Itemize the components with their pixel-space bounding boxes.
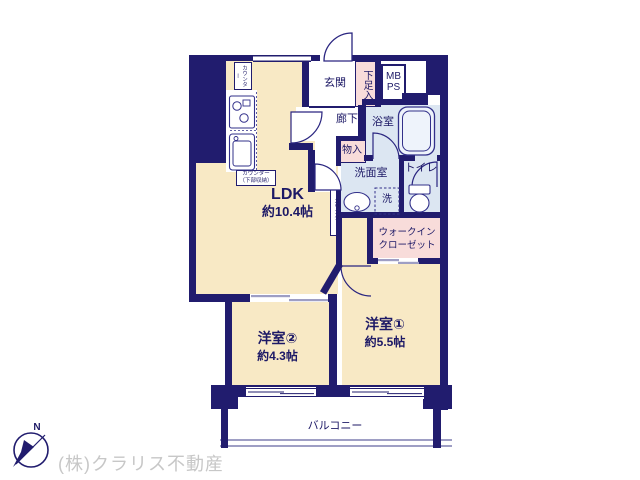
wall xyxy=(221,409,228,448)
balcony-label: バルコニー xyxy=(300,420,370,433)
meter-box-label: MB PS xyxy=(381,71,406,93)
wall xyxy=(189,55,253,61)
balcony-fence-line xyxy=(220,445,452,447)
wall xyxy=(367,258,378,264)
room-bedroom2-size: 約4.3帖 xyxy=(230,349,325,363)
room-bedroom1-label: 洋室① xyxy=(335,316,435,333)
compass-icon xyxy=(13,433,48,467)
wall xyxy=(336,212,448,218)
room-bedroom1-size: 約5.5帖 xyxy=(335,335,435,349)
balcony-fence-line xyxy=(220,439,452,441)
wall xyxy=(367,212,373,264)
wall xyxy=(440,55,448,410)
washer-label: 洗 xyxy=(377,194,397,206)
watermark-text: (株)クラリス不動産 xyxy=(58,450,224,476)
room-wic-label: ウォークイン クローゼット xyxy=(374,227,440,253)
wall xyxy=(418,258,448,264)
room-washroom-label: 洗面室 xyxy=(343,167,399,180)
wall xyxy=(437,155,440,161)
room-entrance-label: 玄関 xyxy=(315,77,355,90)
compass-north-label: N xyxy=(30,422,44,434)
room-ldk-size: 約10.4帖 xyxy=(240,204,335,219)
room-ldk-label: LDK xyxy=(245,186,330,205)
vestibule-floor xyxy=(315,141,336,192)
wall xyxy=(302,61,309,107)
kitchen-strip-floor xyxy=(226,90,257,172)
room-nook-floor xyxy=(342,218,367,262)
wall xyxy=(225,294,250,302)
wall xyxy=(189,55,196,302)
entrance-door-arc xyxy=(324,33,352,61)
sliding-door-icon xyxy=(250,295,328,303)
shoe-cabinet-label: 下足入 xyxy=(360,66,372,104)
wall xyxy=(433,409,441,448)
room-toilet-label: トイレ xyxy=(403,162,439,175)
floor-plan: LDK 約10.4帖 洋室① 約5.5帖 洋室② 約4.3帖 玄関 下足入 MB… xyxy=(0,0,640,480)
room-bathroom-label: 浴室 xyxy=(366,116,400,129)
kitchen-counter-label: カウンター （下部収納） xyxy=(236,171,276,185)
entrance-step-line xyxy=(309,106,355,108)
wall xyxy=(289,143,313,150)
storage-label: 物入 xyxy=(338,145,366,157)
room-bedroom2-label: 洋室② xyxy=(230,330,325,347)
side-counter-label: カウンター xyxy=(332,191,339,233)
room-hallway-label: 廊下 xyxy=(327,113,367,126)
service-niche xyxy=(406,61,426,93)
counter-top-label: カウンター xyxy=(239,64,247,88)
wall xyxy=(311,55,320,61)
